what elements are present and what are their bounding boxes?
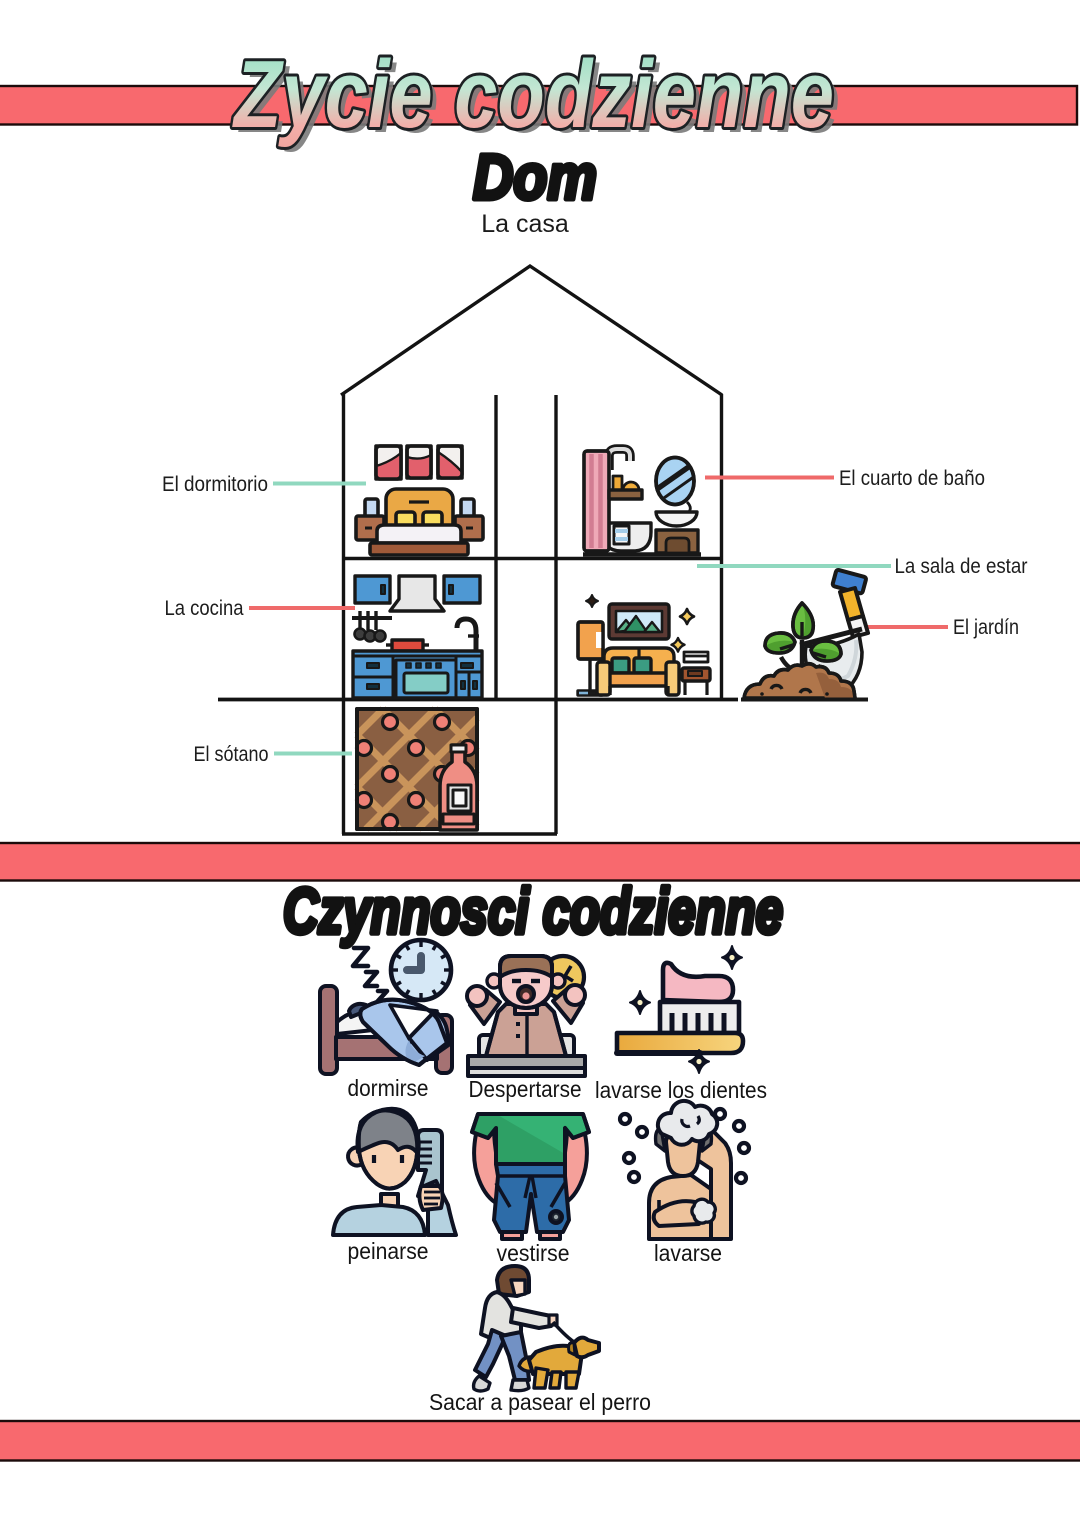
svg-text:La sala de estar: La sala de estar <box>895 555 1028 578</box>
svg-text:El sótano: El sótano <box>194 743 269 766</box>
svg-text:La cocina: La cocina <box>165 597 244 620</box>
svg-text:Sacar a pasear el perro: Sacar a pasear el perro <box>429 1389 651 1415</box>
svg-text:Zycie codzienne: Zycie codzienne <box>232 41 834 148</box>
svg-text:lavarse: lavarse <box>654 1240 722 1266</box>
svg-text:vestirse: vestirse <box>497 1240 570 1266</box>
svg-text:La casa: La casa <box>481 210 569 238</box>
svg-text:El dormitorio: El dormitorio <box>162 473 268 496</box>
svg-text:El cuarto de baño: El cuarto de baño <box>839 467 985 490</box>
svg-text:Czynnosci codzienne: Czynnosci codzienne <box>283 875 783 947</box>
svg-text:Dom: Dom <box>473 141 597 213</box>
svg-text:peinarse: peinarse <box>348 1238 429 1264</box>
svg-text:El jardín: El jardín <box>953 616 1019 639</box>
svg-text:lavarse los dientes: lavarse los dientes <box>595 1077 767 1103</box>
svg-text:Despertarse: Despertarse <box>469 1076 582 1102</box>
svg-text:dormirse: dormirse <box>348 1075 429 1101</box>
